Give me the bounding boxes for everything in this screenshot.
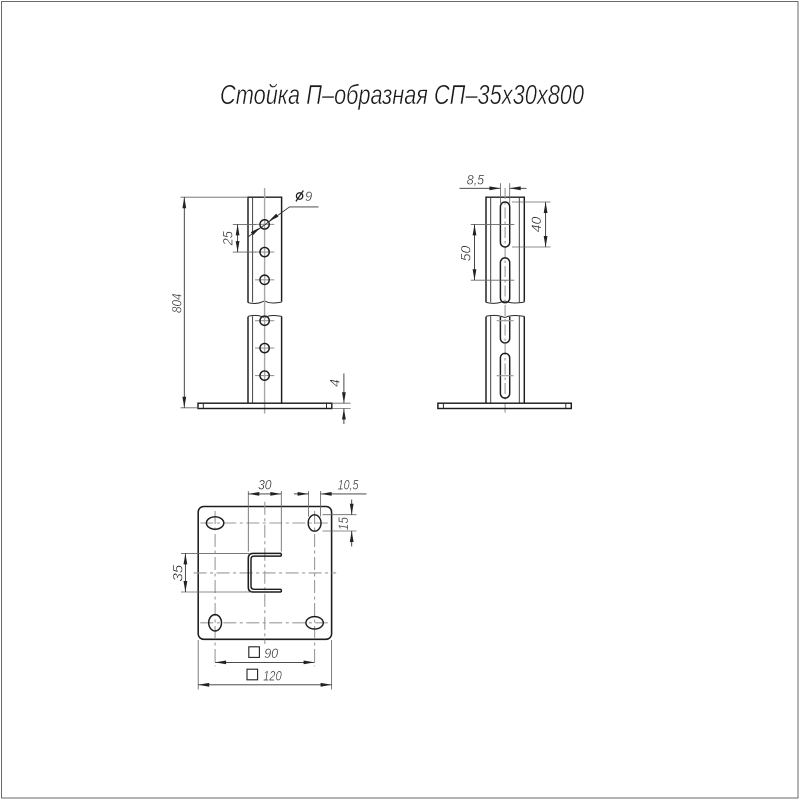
svg-text:30: 30 bbox=[258, 476, 272, 492]
svg-text:50: 50 bbox=[457, 246, 473, 262]
svg-text:40: 40 bbox=[528, 217, 544, 233]
svg-text:Стойка П–образная СП–35х30х800: Стойка П–образная СП–35х30х800 bbox=[220, 79, 585, 110]
svg-text:4: 4 bbox=[327, 379, 343, 387]
svg-text:8,5: 8,5 bbox=[467, 171, 484, 187]
svg-text:15: 15 bbox=[335, 517, 351, 530]
svg-text:25: 25 bbox=[220, 231, 236, 246]
svg-text:804: 804 bbox=[169, 293, 185, 313]
svg-text:90: 90 bbox=[264, 645, 278, 661]
svg-text:10,5: 10,5 bbox=[338, 476, 359, 492]
svg-text:120: 120 bbox=[263, 668, 282, 684]
svg-text:9: 9 bbox=[305, 188, 312, 204]
svg-text:35: 35 bbox=[169, 565, 185, 582]
